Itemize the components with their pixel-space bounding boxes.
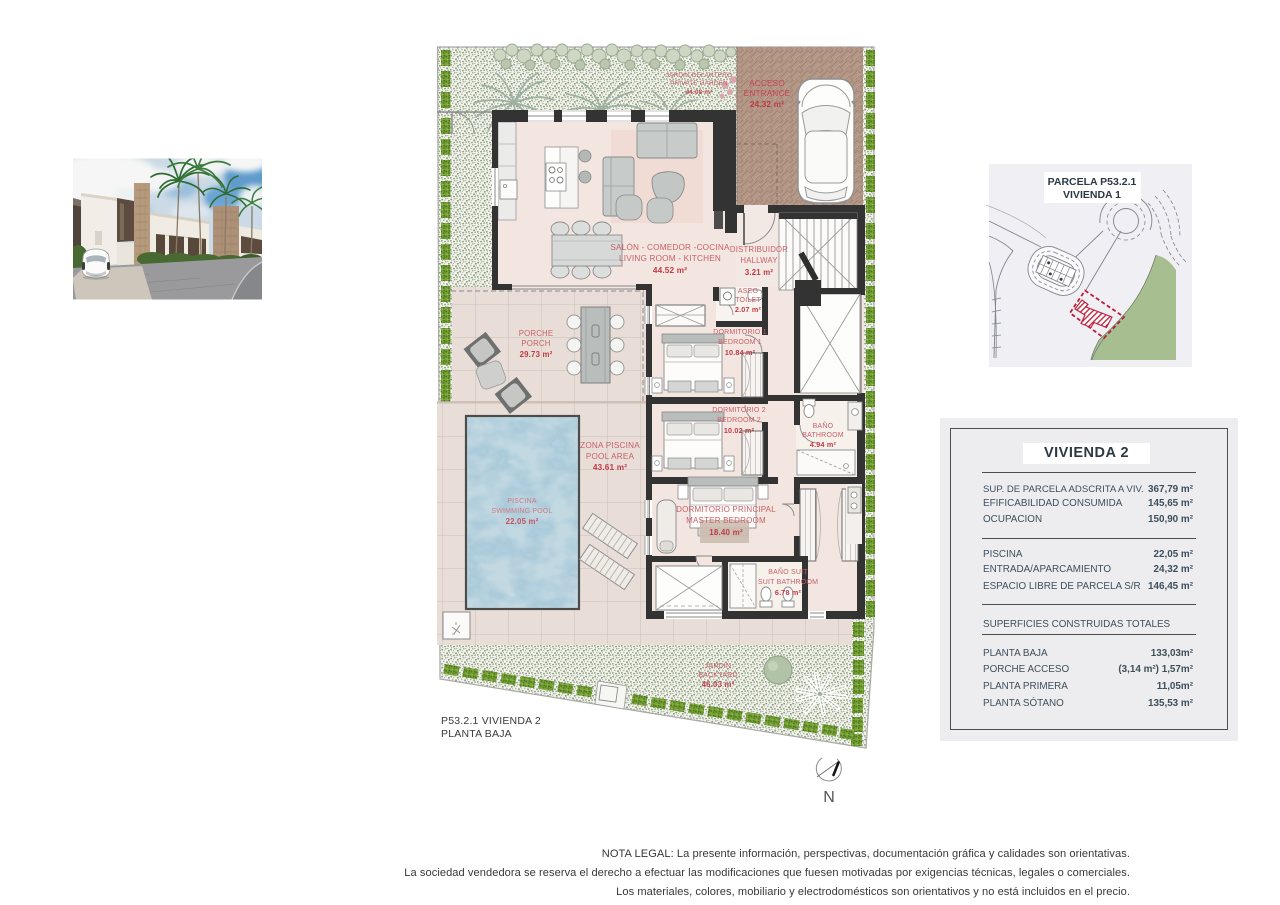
svg-text:DORMITORIO PRINCIPAL: DORMITORIO PRINCIPAL <box>676 505 776 514</box>
svg-text:ACCESO: ACCESO <box>749 79 785 88</box>
svg-text:PORCHE: PORCHE <box>519 329 554 338</box>
svg-text:24.32 m²: 24.32 m² <box>750 100 784 109</box>
svg-text:10.02 m²: 10.02 m² <box>724 426 755 435</box>
svg-text:POOL AREA: POOL AREA <box>586 452 635 461</box>
svg-text:BAÑO: BAÑO <box>813 421 834 430</box>
svg-text:PISCINA: PISCINA <box>507 498 537 505</box>
svg-text:43.61 m²: 43.61 m² <box>593 463 627 472</box>
svg-text:VIVIENDA 1: VIVIENDA 1 <box>1063 189 1121 201</box>
svg-text:DISTRIBUIDOR: DISTRIBUIDOR <box>730 245 788 254</box>
svg-text:44.08 m²: 44.08 m² <box>686 89 713 96</box>
svg-text:DORMITORIO 1: DORMITORIO 1 <box>713 329 767 336</box>
svg-text:3.21 m²: 3.21 m² <box>745 268 773 277</box>
svg-text:TOILET: TOILET <box>735 297 761 304</box>
svg-text:PORCH: PORCH <box>521 339 550 348</box>
svg-text:BEDROOM 1: BEDROOM 1 <box>718 339 762 346</box>
svg-text:BATHROOM: BATHROOM <box>802 432 844 439</box>
svg-text:JARDIN: JARDIN <box>705 663 731 670</box>
svg-text:18.40 m²: 18.40 m² <box>709 528 743 537</box>
svg-text:LIVING ROOM - KITCHEN: LIVING ROOM - KITCHEN <box>619 254 721 263</box>
svg-text:PARCELA P53.2.1: PARCELA P53.2.1 <box>1048 176 1137 188</box>
svg-text:DORMITORIO 2: DORMITORIO 2 <box>712 407 766 414</box>
svg-text:HALLWAY: HALLWAY <box>740 256 778 265</box>
svg-text:BEDROOM 2: BEDROOM 2 <box>717 417 761 424</box>
svg-text:JARDIN DELANTERO: JARDIN DELANTERO <box>666 72 732 79</box>
svg-text:22.05 m²: 22.05 m² <box>506 517 539 526</box>
svg-text:29.73 m²: 29.73 m² <box>520 350 553 359</box>
svg-text:N: N <box>823 789 835 806</box>
svg-text:SUIT BATHROOM: SUIT BATHROOM <box>758 579 818 586</box>
svg-text:4.94 m²: 4.94 m² <box>810 440 837 449</box>
svg-text:BACKYARD: BACKYARD <box>698 672 738 679</box>
svg-text:6.78 m²: 6.78 m² <box>775 588 802 597</box>
svg-text:MASTER BEDROOM: MASTER BEDROOM <box>686 516 766 525</box>
svg-text:ZONA PISCINA: ZONA PISCINA <box>580 441 640 450</box>
svg-text:PRIVATE GARDEN: PRIVATE GARDEN <box>670 80 728 87</box>
svg-text:10.84 m²: 10.84 m² <box>725 348 756 357</box>
svg-text:ASEO: ASEO <box>738 288 759 295</box>
svg-text:SWIMMING POOL: SWIMMING POOL <box>491 508 552 515</box>
svg-text:2.07 m²: 2.07 m² <box>735 305 762 314</box>
svg-text:44.52 m²: 44.52 m² <box>653 266 687 275</box>
svg-text:ENTRANCE: ENTRANCE <box>744 89 791 98</box>
svg-text:SALÓN - COMEDOR -COCINA: SALÓN - COMEDOR -COCINA <box>610 242 730 252</box>
svg-text:46.03 m²: 46.03 m² <box>702 680 735 689</box>
svg-text:BAÑO SUIT: BAÑO SUIT <box>768 567 808 576</box>
